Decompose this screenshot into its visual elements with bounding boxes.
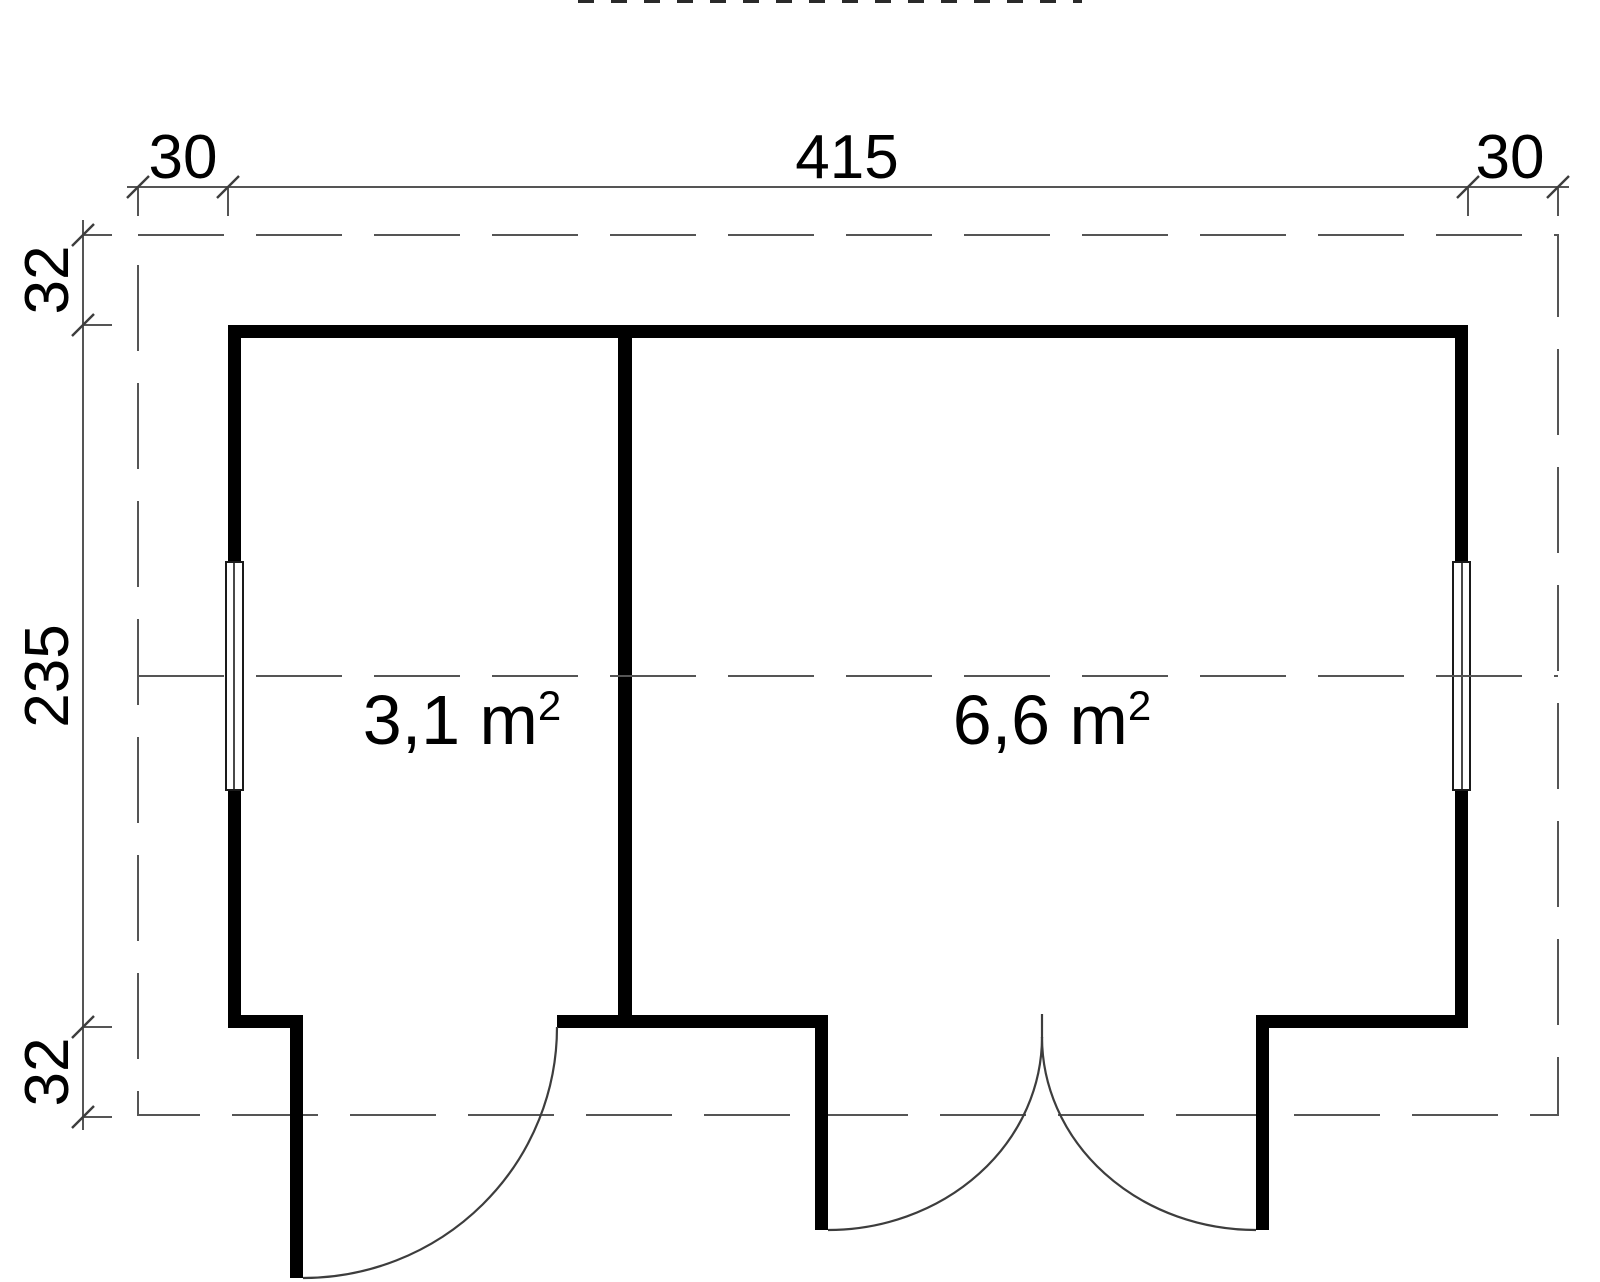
room-2-area-label: 6,6 m2 [953,681,1151,759]
single-door-swing-arc [303,1027,557,1278]
single-door [290,1027,557,1278]
right-wall-upper [1455,325,1468,562]
left-dimension-chain: 32 235 32 [13,220,112,1130]
room-labels: 3,1 m2 6,6 m2 [363,681,1151,759]
double-door-left-leaf [815,1015,828,1230]
room-1-area-label: 3,1 m2 [363,681,561,759]
room-1-area-value: 3,1 m [363,681,538,759]
dim-label-left-middle: 235 [13,624,82,727]
room-2-area-value: 6,6 m [953,681,1128,759]
dim-label-left-top: 32 [13,246,82,315]
floor-plan-drawing: 30 415 30 32 235 32 3,1 m2 6,6 m2 [0,0,1600,1282]
bottom-wall-left-segment [228,1015,303,1028]
dim-label-top-center: 415 [795,123,898,192]
room-2-area-exponent: 2 [1128,682,1151,729]
room-1-area-exponent: 2 [538,682,561,729]
left-window [226,562,243,790]
double-door [815,1014,1269,1230]
single-door-leaf [290,1028,303,1278]
dim-label-top-right: 30 [1476,123,1545,192]
dim-label-top-left: 30 [149,123,218,192]
left-wall-upper [228,325,241,562]
double-door-right-leaf [1256,1015,1269,1230]
top-dimension-chain: 30 415 30 [127,123,1569,216]
bottom-wall-middle-segment [557,1015,815,1028]
double-door-left-swing-arc [828,1037,1042,1230]
dim-label-left-bottom: 32 [13,1038,82,1107]
top-wall [228,325,1468,338]
floor-plan-page: 30 415 30 32 235 32 3,1 m2 6,6 m2 [0,0,1600,1282]
right-wall-lower [1455,790,1468,1028]
double-door-right-swing-arc [1042,1037,1256,1230]
bottom-wall-right-segment [1269,1015,1468,1028]
left-wall-lower [228,790,241,1028]
